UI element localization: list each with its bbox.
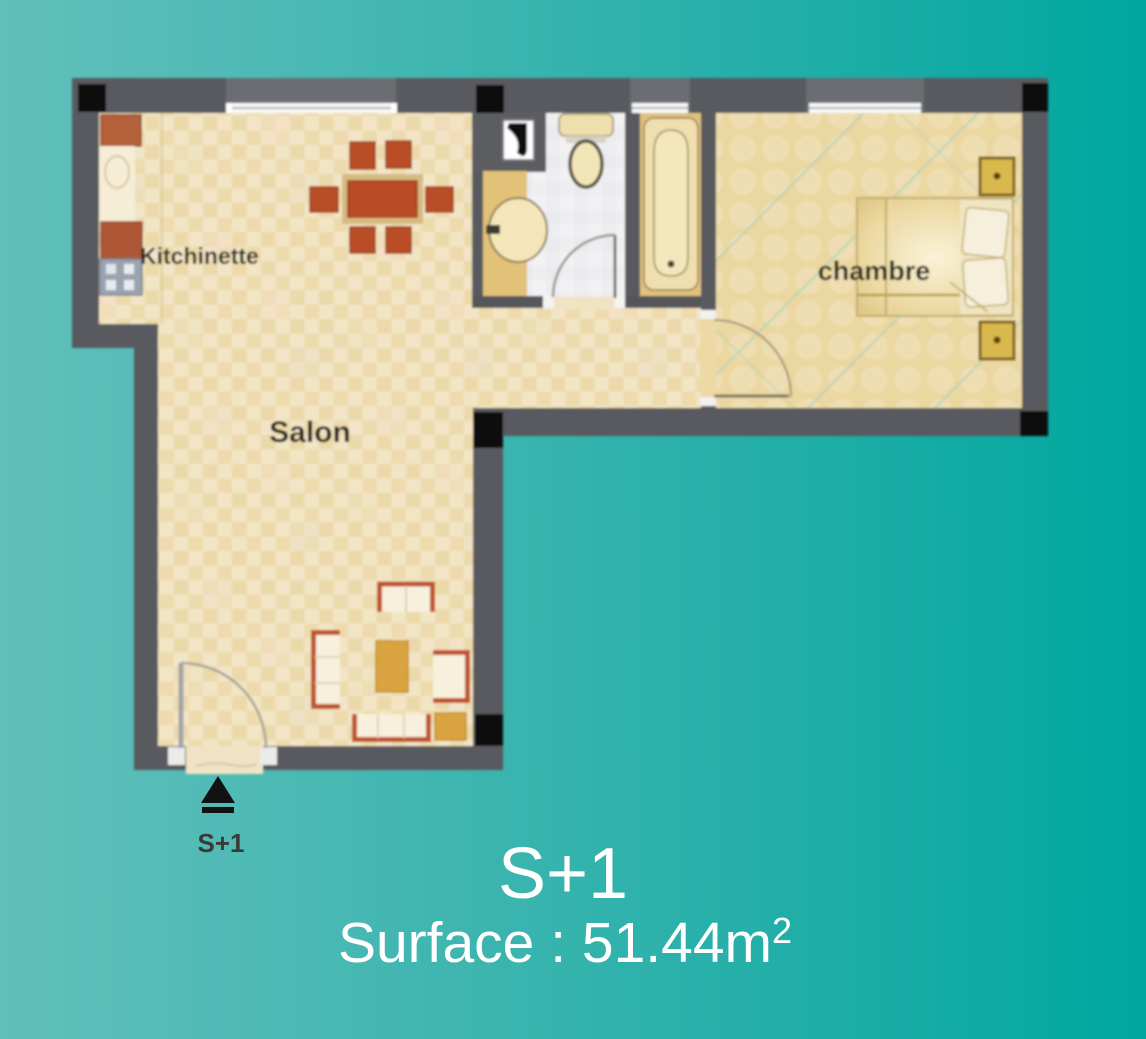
svg-text:Kitchinette: Kitchinette [140, 243, 259, 269]
svg-text:S+1: S+1 [198, 828, 245, 858]
svg-text:Salon: Salon [269, 416, 351, 449]
svg-text:S+1: S+1 [498, 834, 628, 914]
svg-text:Surface : 51.44m2: Surface : 51.44m2 [338, 910, 792, 975]
svg-text:chambre: chambre [818, 256, 931, 286]
